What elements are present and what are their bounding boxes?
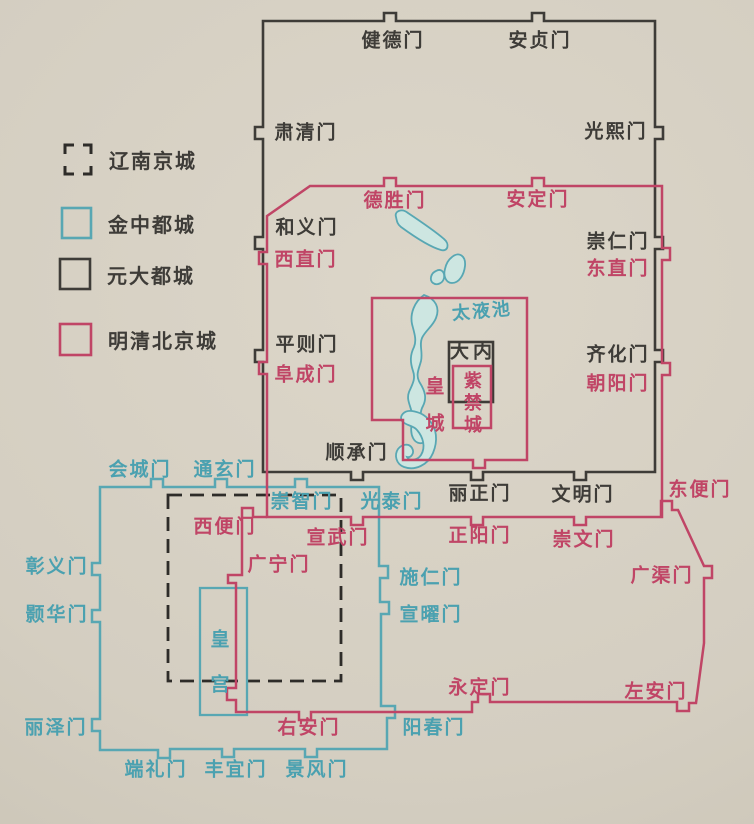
gate-label-chongrenmen: 崇仁门 <box>586 233 649 252</box>
gate-label-xibianmen: 西便门 <box>193 518 256 537</box>
gate-label-lizhengmen: 丽正门 <box>448 485 511 504</box>
gate-label-yangchunmen: 阳春门 <box>402 719 465 738</box>
legend-item-ming: 明清北京城 <box>58 322 218 357</box>
jin-wall-swatch-icon <box>60 206 93 240</box>
gate-label-dongzhimen: 东直门 <box>586 260 649 279</box>
gate-label-jingfengmen: 景风门 <box>285 761 348 780</box>
gate-label-qihuamen: 齐化门 <box>586 346 649 365</box>
gate-label-guangqumen: 广渠门 <box>630 567 693 586</box>
gate-label-suqingmen: 肃清门 <box>274 124 337 143</box>
gate-label-guangningmen: 广宁门 <box>247 556 310 575</box>
gate-label-pingzemen: 平则门 <box>275 336 338 355</box>
liao-wall-swatch-icon <box>62 141 94 177</box>
gate-label-yongdingmen: 永定门 <box>448 679 511 698</box>
gate-label-deshengmen: 德胜门 <box>363 192 426 211</box>
gate-label-huichengmen: 会城门 <box>108 461 171 480</box>
gate-label-fuchengmen: 阜成门 <box>274 366 337 385</box>
gate-label-xuanyaomen: 宣曜门 <box>399 606 462 625</box>
yuan-wall-swatch-icon <box>58 257 92 291</box>
gate-label-xizhimen: 西直门 <box>274 251 337 270</box>
legend-label-liao: 辽南京城 <box>109 145 197 174</box>
gate-label-chongwenmen: 崇文门 <box>552 531 615 550</box>
legend-label-jin: 金中都城 <box>108 209 196 238</box>
area-label-danei: 大内 <box>450 343 496 362</box>
gate-label-zhangyimen: 彰义门 <box>25 558 88 577</box>
ming-wall-swatch-icon <box>58 322 93 357</box>
gate-label-youanmen: 右安门 <box>277 719 340 738</box>
gate-label-heyimen: 和义门 <box>275 219 338 238</box>
gate-label-haohuamen: 颢华门 <box>25 606 88 625</box>
gate-label-duanlimen: 端礼门 <box>124 761 187 780</box>
gate-label-tongxuanmen: 通玄门 <box>193 461 256 480</box>
legend-item-jin: 金中都城 <box>60 206 196 240</box>
gate-label-wenmingmen: 文明门 <box>551 486 614 505</box>
gate-label-dongbianmen: 东便门 <box>668 481 731 500</box>
legend-label-yuan: 元大都城 <box>107 260 195 289</box>
historical-beijing-map: 辽南京城 金中都城 元大都城 明清北京城 健德门 安贞门 肃清门 光熙门 和义门… <box>0 0 754 824</box>
gate-label-shunchengmen: 顺承门 <box>325 444 388 463</box>
gate-label-shirenmen: 施仁门 <box>399 569 462 588</box>
area-label-imperial-city: 皇城 <box>424 376 443 450</box>
legend-item-liao: 辽南京城 <box>62 141 197 177</box>
gate-label-zuoanmen: 左安门 <box>624 683 687 702</box>
legend-item-yuan: 元大都城 <box>58 257 195 291</box>
gate-label-anzhenmen: 安贞门 <box>508 32 571 51</box>
gate-label-guangximen: 光熙门 <box>584 123 647 142</box>
gate-label-zhengyangmen: 正阳门 <box>448 527 511 546</box>
area-label-forbidden-city: 紫禁城 <box>462 371 480 437</box>
area-label-jin-palace: 皇宫 <box>209 629 228 719</box>
area-label-taiye-pool: 太液池 <box>451 300 512 323</box>
gate-label-andingmen: 安定门 <box>506 191 569 210</box>
gate-label-guangtaimen: 光泰门 <box>360 493 423 512</box>
gate-label-fengyimen: 丰宜门 <box>204 761 267 780</box>
gate-label-chaoyangmen: 朝阳门 <box>586 375 649 394</box>
gate-label-lizemen: 丽泽门 <box>24 719 87 738</box>
legend-label-ming: 明清北京城 <box>108 325 218 354</box>
gate-label-jiandemen: 健德门 <box>361 32 424 51</box>
gate-label-chongzhimen: 崇智门 <box>270 493 333 512</box>
gate-label-xuanwumen: 宣武门 <box>306 529 369 548</box>
